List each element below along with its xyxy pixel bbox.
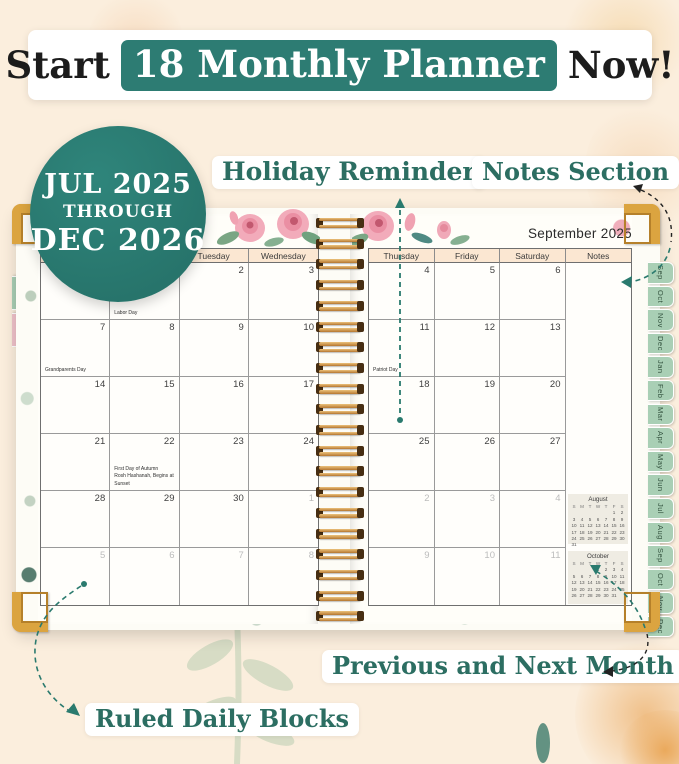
day-cell: 18 [369,377,435,434]
badge-through-label: THROUGH [63,203,173,223]
day-number: 28 [95,493,106,504]
day-cell: 17 [249,377,318,434]
day-cell: 28 [41,491,110,548]
day-cell: 6 [110,548,179,605]
day-number: 5 [490,265,495,276]
day-number: 22 [164,436,175,447]
spiral-coil [316,549,364,559]
right-month-tabs: SepOctNovDecJanFebMarAprMayJunJulAugSepO… [648,262,674,640]
spiral-coil [316,301,364,311]
day-cell: 4 [369,263,435,320]
day-cell: 23 [180,434,249,491]
background-flower-bottom-right-2 [620,710,679,764]
day-number: 27 [550,436,561,447]
callout-ruled-daily-blocks: Ruled Daily Blocks [85,703,359,736]
spiral-coil [316,446,364,456]
mini-calendar-grid: SMTWTFS123456789101112131415161718192021… [568,503,628,551]
day-cell: 22First Day of AutumnRosh Hashanah, Begi… [110,434,179,491]
day-number: 2 [238,265,243,276]
day-cell: 2 [369,491,435,548]
spiral-coil [316,404,364,414]
day-cell: 8 [249,548,318,605]
mini-calendar-title: August [568,494,628,503]
callout-holiday-reminder: Holiday Reminder [212,156,486,189]
notes-cell [566,320,632,377]
weekday-header: Thursday [369,249,435,263]
day-cell: 16 [180,377,249,434]
holiday-label: Patriot Day [373,367,398,375]
day-cell: 29 [110,491,179,548]
background-leaf-branch [170,615,310,764]
spiral-coil [316,218,364,228]
day-cell: 21 [41,434,110,491]
spiral-coil [316,342,364,352]
day-cell: 9 [180,320,249,377]
month-tab-jul: Jul [648,498,674,520]
holiday-label: First Day of AutumnRosh Hashanah, Begins… [114,466,178,489]
holiday-arrowhead-icon [395,198,405,208]
day-number: 1 [309,493,314,504]
day-number: 10 [303,322,314,333]
day-cell: 11 [500,548,566,605]
day-number: 6 [555,265,560,276]
spiral-binding [316,214,364,624]
day-number: 4 [424,265,429,276]
spiral-coil [316,425,364,435]
day-number: 8 [309,550,314,561]
mini-calendar-grid: SMTWTFS123456789101112131415161718192021… [568,560,628,601]
holiday-label: Grandparents Day [45,367,86,375]
month-tab-may: May [648,451,674,473]
day-cell: 2 [180,263,249,320]
day-cell: 5 [435,263,501,320]
day-number: 7 [238,550,243,561]
month-tab-apr: Apr [648,427,674,449]
spiral-coil [316,363,364,373]
day-number: 13 [550,322,561,333]
day-number: 9 [238,322,243,333]
spiral-coil [316,529,364,539]
callout-previous-next-month: Previous and Next Month [322,650,679,683]
day-cell: 3 [435,491,501,548]
day-number: 10 [484,550,495,561]
callout-notes-section: Notes Section [472,156,679,189]
day-number: 6 [169,550,174,561]
weekday-header: Friday [435,249,501,263]
day-number: 11 [420,322,430,333]
month-tab-dec: Dec [648,333,674,355]
corner-protector-bottom-left [12,592,48,632]
spiral-coil [316,611,364,621]
holiday-label: Labor Day [114,310,137,318]
month-tab-oct: Oct [648,569,674,591]
day-number: 3 [309,265,314,276]
headline-banner: Start 18 Monthly Planner Now! [28,30,652,100]
day-number: 23 [233,436,244,447]
day-cell: 6 [500,263,566,320]
day-number: 16 [233,379,244,390]
left-calendar-grid: TuesdayWednesday 1Labor Day237Grandparen… [40,248,319,606]
spiral-coil [316,508,364,518]
day-cell: 11Patriot Day [369,320,435,377]
corner-protector-top-right [624,204,660,244]
headline-suffix: Now! [568,43,675,87]
day-cell: 15 [110,377,179,434]
day-cell: 9 [369,548,435,605]
day-cell: 12 [435,320,501,377]
day-cell: 10 [249,320,318,377]
spiral-coil [316,487,364,497]
spiral-coil [316,570,364,580]
day-cell: 10 [435,548,501,605]
right-weekday-header-row: ThursdayFridaySaturdayNotes [369,249,631,263]
month-tab-mar: Mar [648,404,674,426]
day-cell: 24 [249,434,318,491]
weekday-header: Notes [566,249,632,263]
day-number: 29 [164,493,175,504]
day-cell: 8 [110,320,179,377]
month-tab-aug: Aug [648,522,674,544]
day-number: 3 [490,493,495,504]
month-tab-sep: Sep [648,262,674,284]
spiral-coil [316,384,364,394]
day-cell: 30 [180,491,249,548]
month-tab-nov: Nov [648,309,674,331]
day-cell: 13 [500,320,566,377]
day-number: 12 [484,322,495,333]
day-number: 26 [484,436,495,447]
month-tab-jun: Jun [648,474,674,496]
day-number: 20 [550,379,561,390]
weekday-header: Wednesday [249,249,318,263]
spiral-coil [316,259,364,269]
ruled-arrowhead-icon [66,703,80,716]
spiral-coil [316,591,364,601]
headline-highlight: 18 Monthly Planner [121,40,557,91]
day-number: 18 [419,379,430,390]
month-tab-sep: Sep [648,545,674,567]
day-number: 7 [100,322,105,333]
day-cell: 5 [41,548,110,605]
mini-calendar-title: October [568,551,628,560]
day-number: 8 [169,322,174,333]
spiral-coil [316,280,364,290]
day-number: 4 [555,493,560,504]
day-number: 14 [95,379,106,390]
day-number: 25 [419,436,430,447]
mini-calendar-august: AugustSMTWTFS123456789101112131415161718… [568,494,628,544]
corner-protector-bottom-right [624,592,660,632]
spiral-coil [316,239,364,249]
day-cell: 14 [41,377,110,434]
day-cell: 4 [500,491,566,548]
weekday-header: Saturday [500,249,566,263]
month-tab-oct: Oct [648,286,674,308]
day-cell: 25 [369,434,435,491]
background-teal-leaf [528,722,558,764]
badge-start-date: JUL 2025 [44,169,192,200]
day-number: 15 [164,379,175,390]
day-number: 24 [303,436,314,447]
product-image: September 2025 TuesdayWednesday 1Labor D… [0,0,679,764]
day-number: 9 [424,550,429,561]
day-cell: 19 [435,377,501,434]
day-number: 19 [484,379,495,390]
spiral-coil [316,322,364,332]
month-tab-jan: Jan [648,356,674,378]
day-number: 11 [551,550,561,561]
day-cell: 1 [249,491,318,548]
month-title: September 2025 [460,226,632,241]
spiral-coil [316,466,364,476]
day-cell: 7 [180,548,249,605]
day-cell: 3 [249,263,318,320]
left-day-cells: 1Labor Day237Grandparents Day89101415161… [41,263,318,605]
mini-calendar-october: OctoberSMTWTFS12345678910111213141516171… [568,551,628,604]
badge-end-date: DEC 2026 [31,224,206,259]
notes-cell [566,377,632,434]
day-number: 21 [95,436,106,447]
headline-prefix: Start [6,43,110,87]
day-cell: 27 [500,434,566,491]
notes-cell [566,263,632,320]
day-cell: 20 [500,377,566,434]
day-cell: 26 [435,434,501,491]
day-number: 17 [303,379,314,390]
day-number: 30 [233,493,244,504]
day-cell: 7Grandparents Day [41,320,110,377]
month-tab-feb: Feb [648,380,674,402]
date-range-badge: JUL 2025 THROUGH DEC 2026 [30,126,206,302]
notes-cell [566,434,632,491]
day-number: 5 [100,550,105,561]
day-number: 2 [424,493,429,504]
